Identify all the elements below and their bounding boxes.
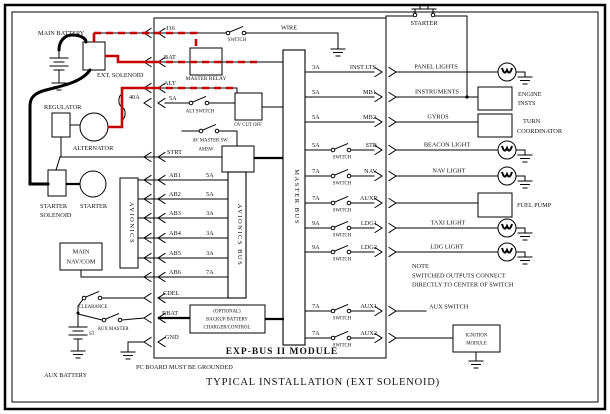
module-name: EXP-BUS II MODULE bbox=[226, 347, 339, 357]
wire-label: WIRE bbox=[281, 25, 297, 32]
backup-battery-line3: CHARGER/CONTROL bbox=[204, 326, 251, 331]
amp-label: 3A bbox=[312, 64, 320, 71]
clearance-label: CLEARANCE bbox=[79, 305, 108, 310]
turn-coordinator-line2: COORDINATOR bbox=[517, 128, 563, 135]
engine-insts-line1: ENGINE bbox=[518, 91, 542, 98]
ignition-line1: IGNITION bbox=[466, 334, 488, 339]
output-label: AUX2 bbox=[360, 330, 377, 337]
page-title: TYPICAL INSTALLATION (EXT SOLENOID) bbox=[206, 377, 440, 388]
ab1-label: AB1 bbox=[169, 172, 181, 179]
aux-battery-label: AUX BATTERY bbox=[44, 372, 88, 379]
starter-motor-label: STARTER bbox=[80, 203, 108, 210]
beacon-light-label: BEACON LIGHT bbox=[424, 142, 471, 149]
main-navcom-line1: MAIN bbox=[73, 249, 90, 256]
ab6-label: AB6 bbox=[169, 269, 181, 276]
ab4-amp: 3A bbox=[206, 230, 214, 237]
note-line3: DIRECTLY TO CENTER OF SWITCH bbox=[412, 282, 514, 289]
j16-label: J16 bbox=[166, 25, 175, 32]
output-label: LDG2 bbox=[361, 244, 377, 251]
alt-label: ALT bbox=[164, 80, 176, 87]
amp-label: 7A bbox=[312, 303, 320, 310]
strt-label: STRT bbox=[167, 149, 182, 156]
ab4-label: AB4 bbox=[169, 230, 182, 237]
alt-fuse-label: 5A bbox=[169, 95, 177, 102]
nav-light-label: NAV LIGHT bbox=[432, 168, 465, 175]
output-label: STB bbox=[365, 142, 377, 149]
ab5-label: AB5 bbox=[169, 250, 181, 257]
note-line1: NOTE bbox=[412, 263, 429, 270]
ab6-amp: 7A bbox=[206, 269, 214, 276]
ab5-amp: 3A bbox=[206, 250, 214, 257]
aux-master-label: AUX MASTER bbox=[97, 327, 129, 332]
ab3-label: AB3 bbox=[169, 210, 181, 217]
wiring-diagram: EXP-BUS II MODULE SWITCH WIRE J16 BAT MA… bbox=[0, 0, 610, 414]
amp-label: 9A bbox=[312, 244, 320, 251]
instruments-label: INSTRUMENTS bbox=[415, 89, 460, 96]
backup-battery-line1: (OPTIONAL) bbox=[213, 310, 241, 315]
aux-switch-label: AUX SWITCH bbox=[429, 304, 469, 311]
taxi-light-label: TAXI LIGHT bbox=[431, 220, 466, 227]
ab2-amp: 5A bbox=[206, 191, 214, 198]
output-label: AUX1 bbox=[360, 303, 377, 310]
amp-label: 5A bbox=[312, 89, 320, 96]
amp-label: 7A bbox=[312, 195, 320, 202]
avionics-label: AVIONICS bbox=[128, 202, 135, 244]
output-label: LDG1 bbox=[361, 220, 377, 227]
main-navcom-line2: NAV/COM bbox=[67, 259, 96, 266]
backup-battery-line2: BACKUP BATTERY bbox=[206, 318, 248, 323]
switch-label: SWITCH bbox=[228, 38, 247, 43]
starter-solenoid-line2: SOLENOID bbox=[40, 212, 72, 219]
starter-solenoid-line1: STARTER bbox=[40, 203, 68, 210]
gyros-label: GYROS bbox=[427, 114, 449, 121]
output-label: MB1 bbox=[363, 89, 376, 96]
amsw-label: AMSW bbox=[199, 148, 214, 153]
switch-label: SWITCH bbox=[333, 234, 352, 239]
output-label: AUXP bbox=[360, 195, 378, 202]
ab3-amp: 3A bbox=[206, 210, 214, 217]
note-line2: SWITCHED OUTPUTS CONNECT bbox=[412, 273, 506, 280]
switch-label: SWITCH bbox=[333, 317, 352, 322]
cdel-label: CDEL bbox=[163, 290, 180, 297]
fuel-pump-label: FUEL PUMP bbox=[517, 202, 552, 209]
amp-label: 7A bbox=[312, 330, 320, 337]
switch-label: SWITCH bbox=[333, 156, 352, 161]
master-bus-label: MASTER BUS bbox=[293, 169, 300, 225]
output-label: MB2 bbox=[363, 114, 376, 121]
ab2-label: AB2 bbox=[169, 191, 181, 198]
alt-switch-label: ALT SWITCH bbox=[186, 110, 215, 115]
avionics-bus-label: AVIONICS BUS bbox=[236, 204, 243, 267]
output-label: NAV bbox=[364, 168, 377, 175]
engine-insts-line2: INSTS bbox=[518, 100, 536, 107]
alternator-fuse-label: 40A bbox=[129, 94, 140, 101]
st-label: ST bbox=[89, 332, 95, 337]
ldg-light-label: LDG LIGHT bbox=[430, 244, 464, 251]
amp-label: 5A bbox=[312, 142, 320, 149]
ext-solenoid-label: EXT. SOLENOID bbox=[97, 72, 144, 79]
turn-coordinator-line1: TURN bbox=[523, 118, 541, 125]
switch-label: SWITCH bbox=[333, 344, 352, 349]
regulator-label: REGULATOR bbox=[44, 104, 82, 111]
amp-label: 5A bbox=[312, 114, 320, 121]
ov-cutoff-label: OV CUT OFF bbox=[234, 123, 262, 128]
av-master-sw-label: AV MASTER SW bbox=[192, 139, 228, 144]
amp-label: 9A bbox=[312, 220, 320, 227]
ab1-amp: 5A bbox=[206, 172, 214, 179]
alternator-label: ALTERNATOR bbox=[73, 145, 114, 152]
master-relay-label: MASTER RELAY bbox=[186, 76, 227, 82]
rbat-label: RBAT bbox=[162, 310, 178, 317]
amp-label: 7A bbox=[312, 168, 320, 175]
panel-lights-label: PANEL LIGHTS bbox=[414, 64, 458, 71]
output-label: INST LTS bbox=[350, 64, 377, 71]
board-note: PC BOARD MUST BE GROUNDED bbox=[136, 364, 233, 371]
wiring-diagram-page: EXP-BUS II MODULE SWITCH WIRE J16 BAT MA… bbox=[0, 0, 610, 414]
ignition-line2: MODULE bbox=[466, 342, 487, 347]
switch-label: SWITCH bbox=[333, 209, 352, 214]
bat-label: BAT bbox=[164, 54, 176, 61]
junction-dot bbox=[77, 312, 80, 315]
switch-label: SWITCH bbox=[333, 258, 352, 263]
gnd-label: GND bbox=[165, 334, 179, 341]
starter-button-label: STARTER bbox=[410, 20, 438, 27]
switch-label: SWITCH bbox=[333, 182, 352, 187]
